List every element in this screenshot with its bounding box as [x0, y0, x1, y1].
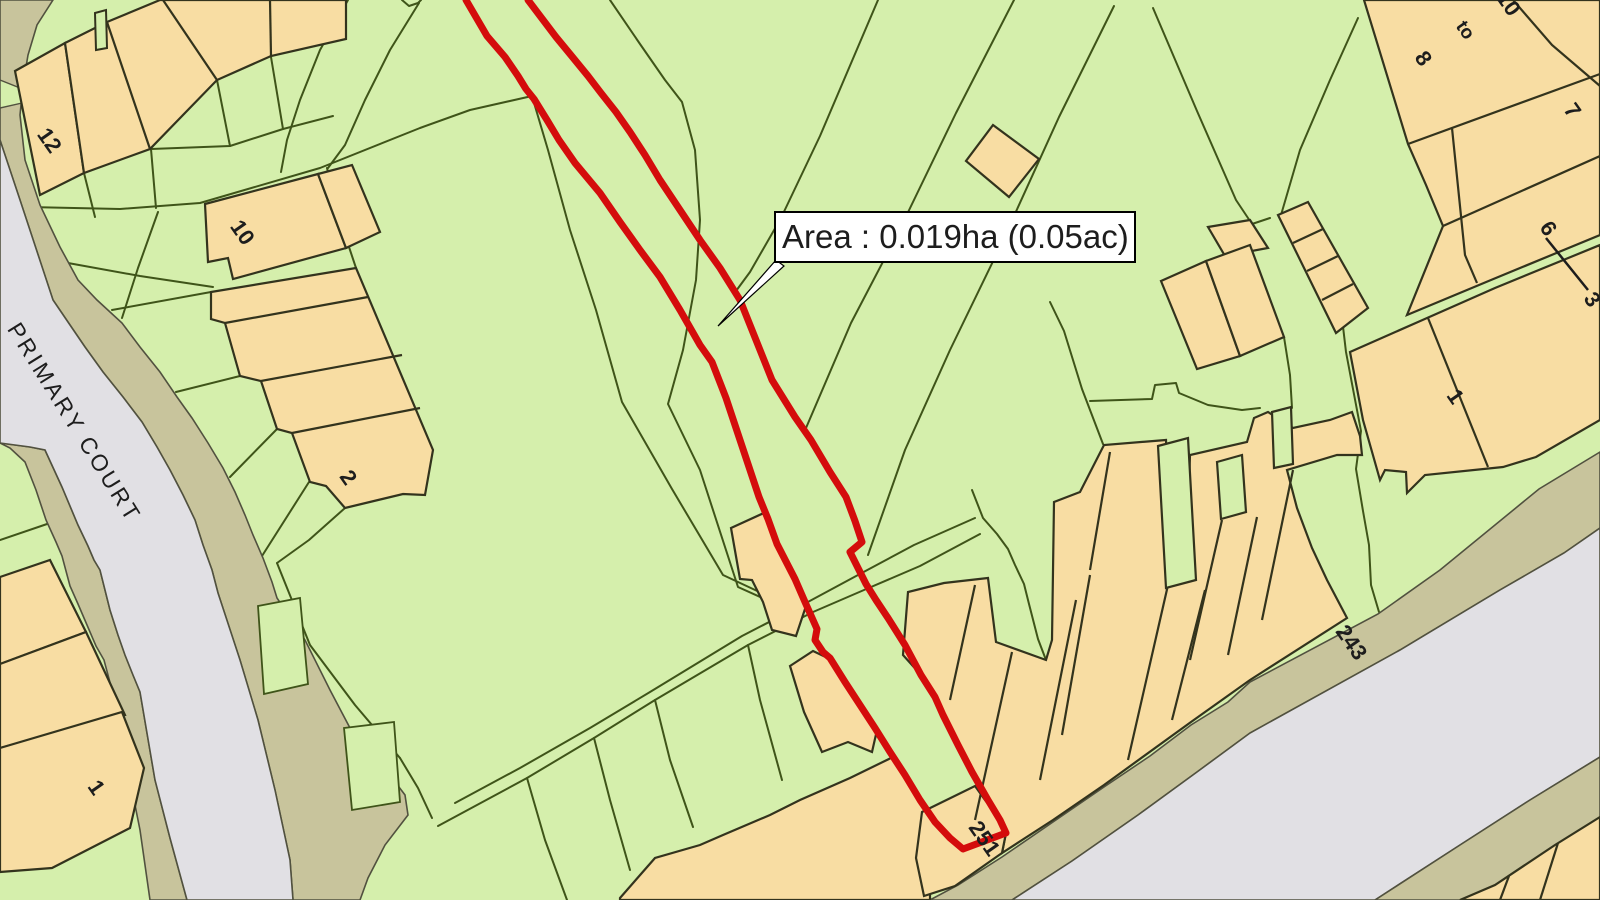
svg-text:Area : 0.019ha (0.05ac): Area : 0.019ha (0.05ac): [782, 218, 1129, 255]
